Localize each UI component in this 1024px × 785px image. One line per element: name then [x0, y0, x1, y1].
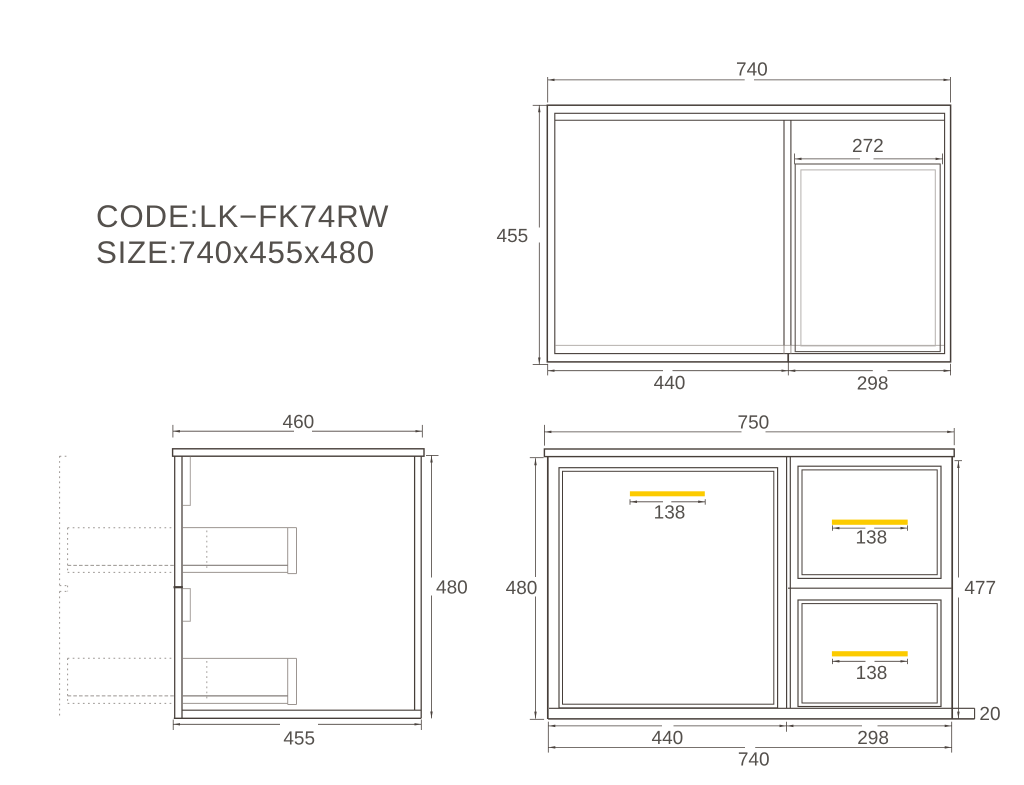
svg-text:298: 298: [857, 373, 889, 394]
svg-text:272: 272: [852, 136, 884, 157]
svg-text:740: 740: [736, 59, 768, 80]
svg-text:750: 750: [738, 412, 770, 433]
svg-text:477: 477: [964, 578, 996, 599]
svg-text:138: 138: [654, 503, 686, 524]
svg-text:440: 440: [652, 728, 684, 749]
svg-text:455: 455: [283, 728, 315, 749]
svg-text:740: 740: [738, 750, 770, 771]
svg-text:460: 460: [283, 412, 315, 433]
svg-text:480: 480: [506, 578, 538, 599]
svg-text:480: 480: [436, 578, 468, 599]
svg-text:SIZE:740x455x480: SIZE:740x455x480: [96, 235, 375, 270]
svg-text:20: 20: [979, 704, 1000, 725]
svg-text:298: 298: [857, 728, 889, 749]
svg-text:138: 138: [855, 528, 887, 549]
svg-text:455: 455: [497, 226, 529, 247]
svg-text:440: 440: [654, 373, 686, 394]
svg-text:CODE:LK−FK74RW: CODE:LK−FK74RW: [96, 199, 389, 234]
svg-text:138: 138: [856, 663, 888, 684]
